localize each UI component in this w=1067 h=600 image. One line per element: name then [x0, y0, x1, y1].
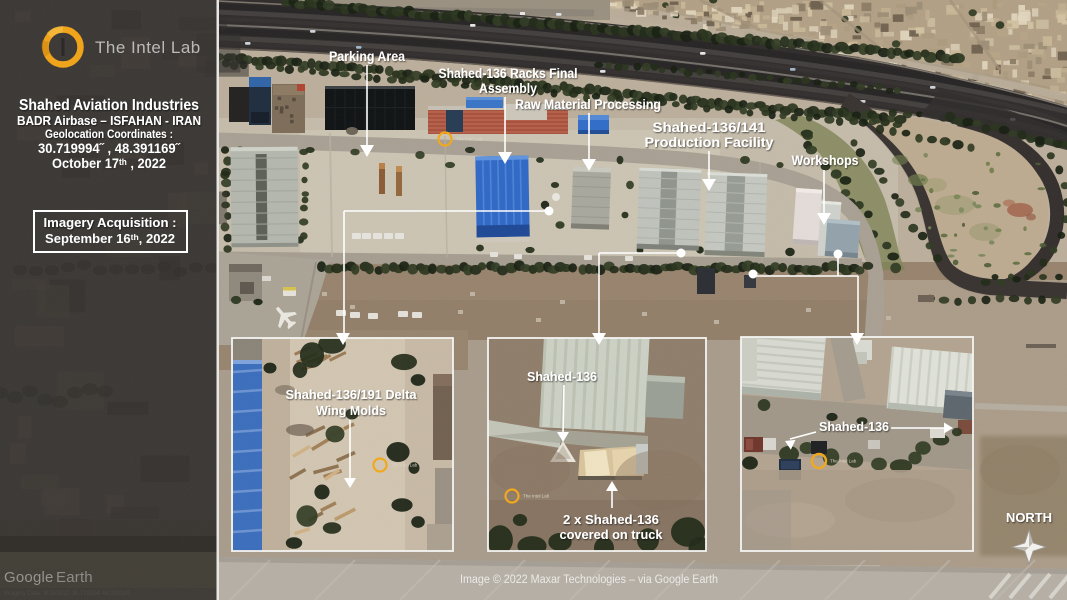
svg-text:BADR Airbase – ISFAHAN - IRAN: BADR Airbase – ISFAHAN - IRAN	[17, 113, 201, 128]
svg-text:Imagery Date: 9/16/2022 30.71: Imagery Date: 9/16/2022 30.719994 48.391…	[4, 591, 130, 597]
svg-text:2 x Shahed-136: 2 x Shahed-136	[563, 512, 659, 527]
svg-text:Raw Material Processing: Raw Material Processing	[515, 97, 661, 112]
svg-text:Shahed-136 Racks Final: Shahed-136 Racks Final	[439, 66, 578, 81]
svg-text:NORTH: NORTH	[1006, 511, 1052, 525]
svg-text:Imagery Acquisition :: Imagery Acquisition :	[44, 215, 177, 230]
svg-text:Wing Molds: Wing Molds	[316, 403, 386, 418]
svg-text:Shahed-136: Shahed-136	[527, 369, 597, 384]
svg-text:30.719994˝ , 48.391169˝: 30.719994˝ , 48.391169˝	[38, 141, 181, 156]
svg-text:The Intel Lab: The Intel Lab	[830, 459, 857, 464]
svg-text:October 17th , 2022: October 17th , 2022	[52, 155, 166, 171]
svg-text:Workshops: Workshops	[792, 153, 859, 168]
svg-text:Assembly: Assembly	[479, 81, 537, 96]
svg-text:Image © 2022 Maxar Technologie: Image © 2022 Maxar Technologies – via Go…	[460, 574, 718, 586]
svg-text:Shahed Aviation Industries: Shahed Aviation Industries	[19, 97, 199, 114]
svg-text:covered on truck: covered on truck	[560, 527, 664, 542]
svg-text:The Intel Lab: The Intel Lab	[391, 463, 418, 468]
svg-text:Shahed-136/191 Delta: Shahed-136/191 Delta	[286, 387, 418, 402]
svg-text:The Intel Lab: The Intel Lab	[523, 494, 550, 499]
svg-text:Shahed-136/141: Shahed-136/141	[653, 120, 767, 135]
svg-text:Geolocation Coordinates :: Geolocation Coordinates :	[45, 129, 173, 141]
svg-text:Parking Area: Parking Area	[329, 49, 405, 64]
svg-text:The Intel Lab: The Intel Lab	[95, 38, 201, 57]
svg-text:Google: Google	[4, 569, 54, 586]
svg-text:September 16th, 2022: September 16th, 2022	[45, 231, 175, 246]
svg-text:The Intel Lab: The Intel Lab	[456, 137, 483, 142]
svg-text:Shahed-136: Shahed-136	[819, 419, 889, 434]
svg-text:Earth: Earth	[56, 569, 93, 586]
svg-text:Production Facility: Production Facility	[645, 135, 775, 150]
